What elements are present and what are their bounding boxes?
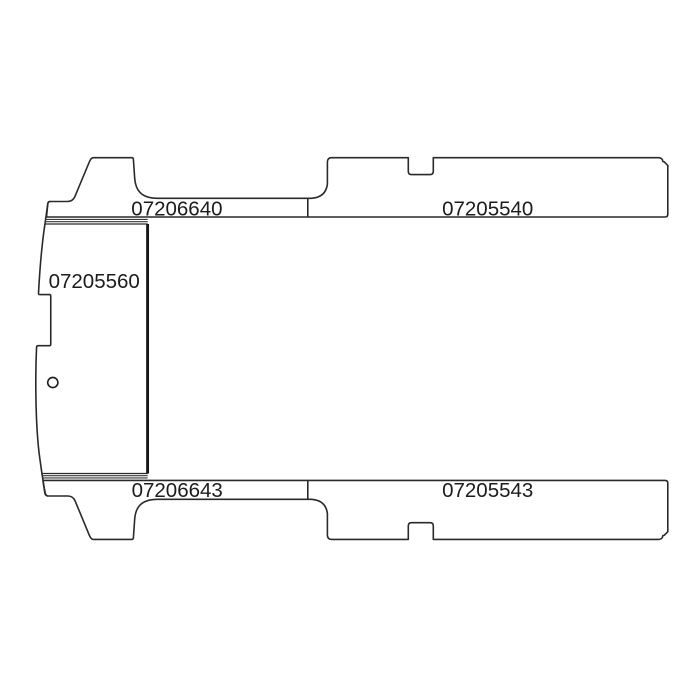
svg-text:07205543: 07205543 [442,479,533,502]
svg-text:07206640: 07206640 [131,198,222,221]
svg-text:07206643: 07206643 [132,479,223,502]
svg-text:07205540: 07205540 [442,198,533,221]
svg-text:07205560: 07205560 [49,270,140,293]
